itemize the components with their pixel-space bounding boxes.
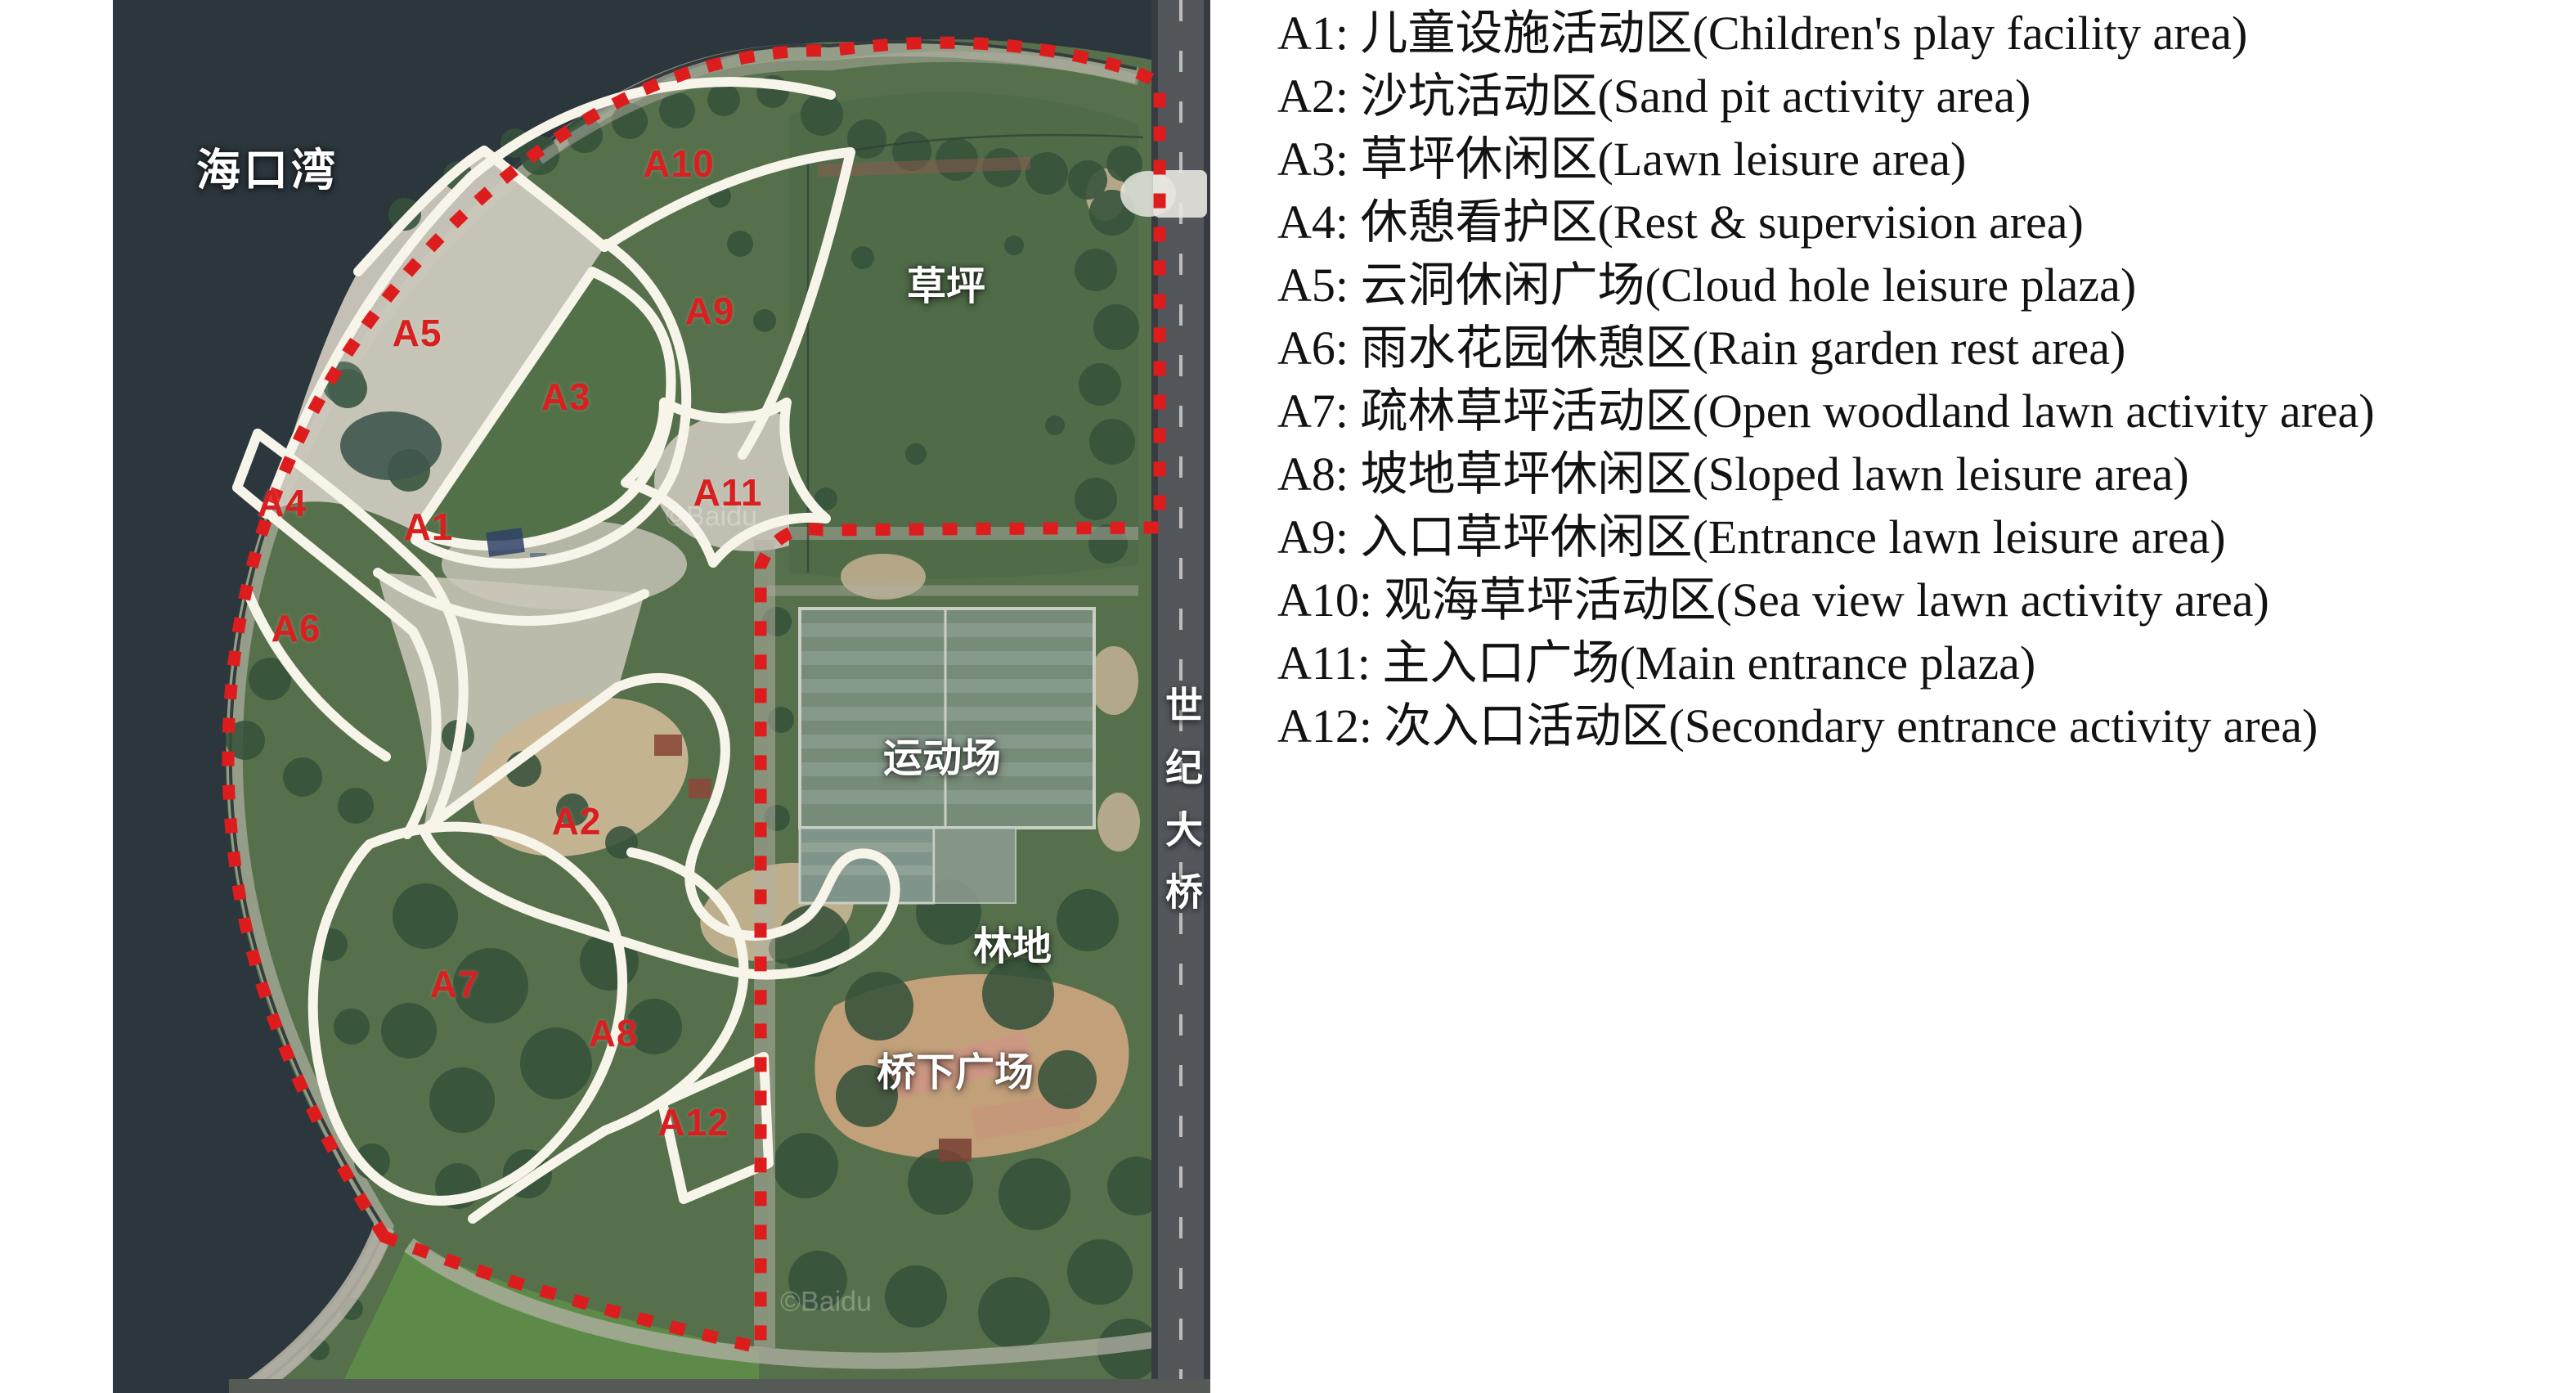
zone-marker-a7: A7	[430, 962, 480, 1006]
area-label-under-bridge: 桥下广场	[877, 1040, 1034, 1097]
legend-item-a4: A4: 休憩看护区(Rest & supervision area)	[1277, 191, 2375, 254]
area-label-woodland: 林地	[973, 914, 1052, 971]
figure-page: { "map": { "sea_label": "海口湾", "bridge_l…	[0, 0, 2576, 1393]
legend-item-a12: A12: 次入口活动区(Secondary entrance activity …	[1277, 694, 2375, 757]
legend-item-a9: A9: 入口草坪休闲区(Entrance lawn leisure area)	[1277, 506, 2375, 568]
legend-item-a5: A5: 云洞休闲广场(Cloud hole leisure plaza)	[1277, 254, 2375, 317]
sea-label: 海口湾	[196, 134, 339, 199]
sports-field-large	[800, 609, 1094, 828]
zone-marker-a6: A6	[272, 606, 321, 650]
zone-marker-a8: A8	[589, 1011, 639, 1055]
legend-item-a6: A6: 雨水花园休憩区(Rain garden rest area)	[1277, 317, 2375, 380]
legend-panel: A1: 儿童设施活动区(Children's play facility are…	[1277, 2, 2375, 757]
legend-item-a2: A2: 沙坑活动区(Sand pit activity area)	[1277, 65, 2375, 128]
legend-item-a1: A1: 儿童设施活动区(Children's play facility are…	[1277, 2, 2375, 65]
zone-marker-a2: A2	[552, 799, 602, 843]
map-canvas	[0, 0, 1210, 1393]
bottom-road	[229, 1379, 1210, 1393]
watermark-baidu-1: ©Baidu	[666, 501, 757, 533]
page-margin	[0, 0, 113, 1393]
area-label-sports: 运动场	[883, 726, 1001, 783]
legend-item-a11: A11: 主入口广场(Main entrance plaza)	[1277, 631, 2375, 694]
legend-item-a10: A10: 观海草坪活动区(Sea view lawn activity area…	[1277, 568, 2375, 631]
bridge-label: 世纪大桥	[1155, 685, 1209, 934]
zone-marker-a10: A10	[643, 142, 714, 186]
zone-marker-a12: A12	[657, 1100, 729, 1144]
legend-item-a7: A7: 疏林草坪活动区(Open woodland lawn activity …	[1277, 380, 2375, 443]
watermark-baidu-2: ©Baidu	[780, 1287, 872, 1319]
zone-marker-a4: A4	[258, 481, 307, 525]
zone-marker-a1: A1	[404, 505, 454, 549]
park-zoning-map: 海口湾 草坪 运动场 林地 桥下广场 世纪大桥 A1 A2 A3 A4 A5 A…	[0, 0, 1210, 1393]
legend-item-a8: A8: 坡地草坪休闲区(Sloped lawn leisure area)	[1277, 443, 2375, 506]
zone-marker-a9: A9	[685, 289, 735, 333]
zone-marker-a3: A3	[541, 375, 591, 419]
sports-field-small	[800, 828, 1016, 903]
area-label-lawn: 草坪	[907, 254, 985, 311]
zone-marker-a5: A5	[393, 311, 442, 355]
legend-item-a3: A3: 草坪休闲区(Lawn leisure area)	[1277, 128, 2375, 191]
